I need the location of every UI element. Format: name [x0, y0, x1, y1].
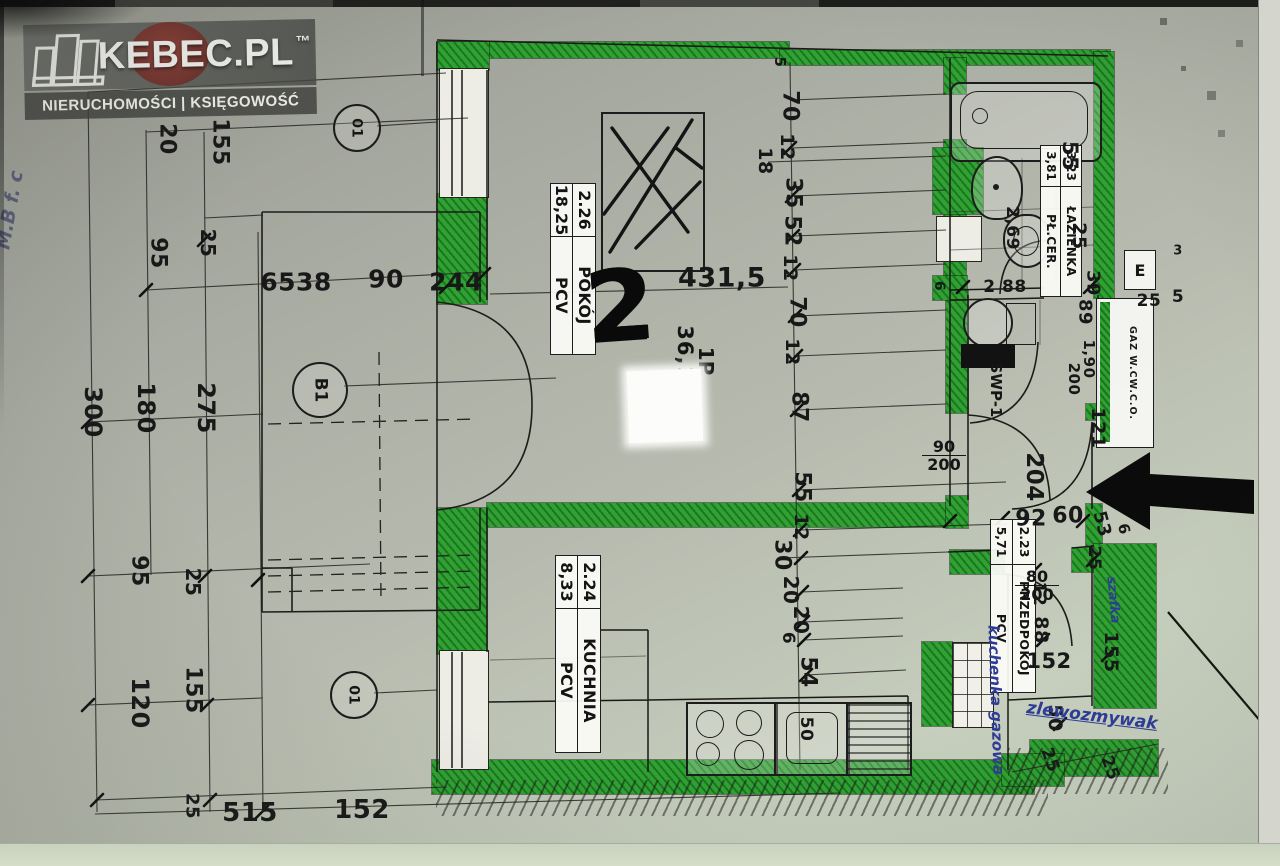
dim-label: 2,69 [1002, 206, 1022, 250]
hatch-marks [1008, 748, 1168, 794]
dim-label: 20 [789, 606, 813, 635]
dim-label: 180 [132, 382, 160, 434]
dim-label: 12 [781, 338, 803, 365]
dim-label: 120 [126, 677, 154, 729]
dim-label: 90 [368, 265, 404, 294]
dim-label: 30 [770, 539, 795, 571]
marker-text: B1 [310, 378, 330, 403]
dim-label: 6 [1114, 521, 1134, 536]
dim-label: 155 [181, 666, 206, 713]
washbasin-dot [993, 184, 999, 190]
wall-segment [946, 496, 968, 528]
dim-label: 55 [1058, 141, 1082, 171]
dim-label: 25 [1084, 546, 1104, 571]
burner [736, 710, 762, 736]
wall-segment [437, 42, 489, 70]
door-height: 200 [922, 455, 966, 473]
boiler-cabinet [1006, 303, 1036, 345]
scan-edge-left [0, 0, 4, 430]
dim-label: 70 [778, 90, 803, 122]
dim-label: 12 [1029, 582, 1049, 607]
scan-edge-bottom [0, 843, 1280, 866]
dim-label: 25 [182, 793, 203, 819]
meter-label: E [1135, 261, 1146, 280]
dim-label: 54 [796, 656, 821, 688]
balcony-marker: B1 [292, 362, 348, 418]
dim-label: 87 [787, 391, 812, 423]
window-marker-bottom: 01 [330, 671, 378, 719]
burner [734, 740, 764, 770]
watermark-tagline: NIERUCHOMOŚCI | KSIĘGOWOŚĆ [24, 87, 317, 120]
dim-label: 12 [779, 254, 801, 281]
wall-segment [487, 503, 950, 527]
dim-label: 25 [1137, 291, 1162, 311]
wall-segment [437, 42, 789, 58]
door-size-room: 90 200 [922, 438, 966, 474]
stove [686, 702, 778, 776]
scan-edge-top [0, 0, 1280, 7]
hatch-marks [436, 780, 1048, 816]
window-wall [439, 68, 489, 198]
dim-label: 25 [181, 568, 205, 597]
crossed-legend-box [601, 112, 705, 272]
dim-label: 121 [1087, 407, 1109, 448]
door-width: 90 [933, 437, 955, 456]
handwritten-unit-number: 2 [582, 256, 657, 359]
dim-label: 152 [1026, 649, 1071, 673]
burner [696, 742, 720, 766]
room-area: 5,71 [991, 520, 1013, 565]
room-floor: PCV [551, 237, 573, 354]
room-area: 18,25 [551, 184, 573, 237]
dim-label: 431,5 [678, 263, 766, 294]
dim-label: 244 [429, 268, 483, 297]
redaction-box [627, 369, 703, 444]
dim-label: 89 [1075, 299, 1096, 325]
room-name: KUCHNIA [579, 609, 601, 752]
dim-label: 92 [1015, 507, 1047, 532]
dim-label: 12 [776, 133, 798, 160]
dim-label: 25 [196, 229, 220, 258]
dim-label: 2 88 [983, 277, 1026, 297]
dim-label: 300 [79, 386, 107, 438]
dim-label: 50 [796, 717, 816, 742]
dim-label: 152 [334, 795, 390, 825]
dim-label: 6 [778, 632, 798, 644]
paper-crease [421, 0, 424, 76]
dim-label: 35 [781, 177, 806, 209]
dim-label: 515 [222, 798, 278, 828]
trademark-symbol: ™ [295, 33, 311, 50]
marker-text: 01 [349, 118, 365, 137]
dim-label: 204 [1021, 452, 1047, 502]
dim-label: 5 [1172, 287, 1184, 307]
dim-label: 39 [1083, 270, 1104, 296]
wall-segment [922, 642, 952, 726]
dim-label: 275 [192, 382, 220, 434]
room-floor: PŁ.CER. [1041, 187, 1061, 296]
room-id: 2.24 [579, 556, 601, 609]
scan-edge-right [1258, 0, 1280, 866]
dim-label: 95 [127, 555, 152, 587]
meter-box: E [1124, 250, 1156, 290]
shaft-label: GAZ W.CW.C.O. [1124, 303, 1138, 443]
dim-label: 20 [155, 123, 180, 155]
room-label-kuchnia: 2.24KUCHNIA 8,33PCV [555, 555, 601, 753]
swp-label: SWP-1 [985, 353, 1005, 427]
dim-label: 200 [1065, 363, 1083, 396]
dim-label: 25 [1068, 222, 1090, 249]
dim-label: 20 [779, 576, 803, 605]
dim-label: 60 [1052, 504, 1084, 529]
margin-handwriting: M.B f. c [0, 169, 28, 251]
dim-label: 18 [754, 147, 776, 174]
dim-label: 3 [1173, 244, 1183, 259]
burner [696, 710, 724, 738]
room-id: 2.26 [574, 184, 596, 237]
dim-label: 5 [771, 57, 789, 68]
dim-label: 12 [790, 513, 812, 540]
dim-label: 6 [931, 281, 947, 291]
dim-label: 55 [790, 471, 815, 503]
dim-label: 52 [780, 215, 805, 247]
room-floor: PCV [556, 609, 578, 752]
scanned-floorplan-photo: GAZ W.CW.C.O. E SWP-1 2 1P 36,10 2.26POK… [0, 0, 1280, 866]
drainer [846, 702, 912, 776]
dim-label: 70 [785, 296, 810, 328]
bathtub-drain [972, 108, 988, 124]
wall-segment [437, 508, 487, 654]
dim-label: 95 [146, 237, 171, 269]
scan-speckles [1150, 12, 1153, 15]
dim-label: 155 [208, 118, 233, 165]
window-wall [936, 216, 982, 262]
room-area: 8,33 [556, 556, 578, 609]
dim-label: 155 [1100, 631, 1122, 672]
marker-text: 01 [346, 685, 362, 704]
window-wall [439, 650, 489, 770]
dim-label: 88 [1030, 616, 1052, 643]
window-marker-top: 01 [333, 104, 381, 152]
dim-label: 6538 [260, 268, 332, 297]
